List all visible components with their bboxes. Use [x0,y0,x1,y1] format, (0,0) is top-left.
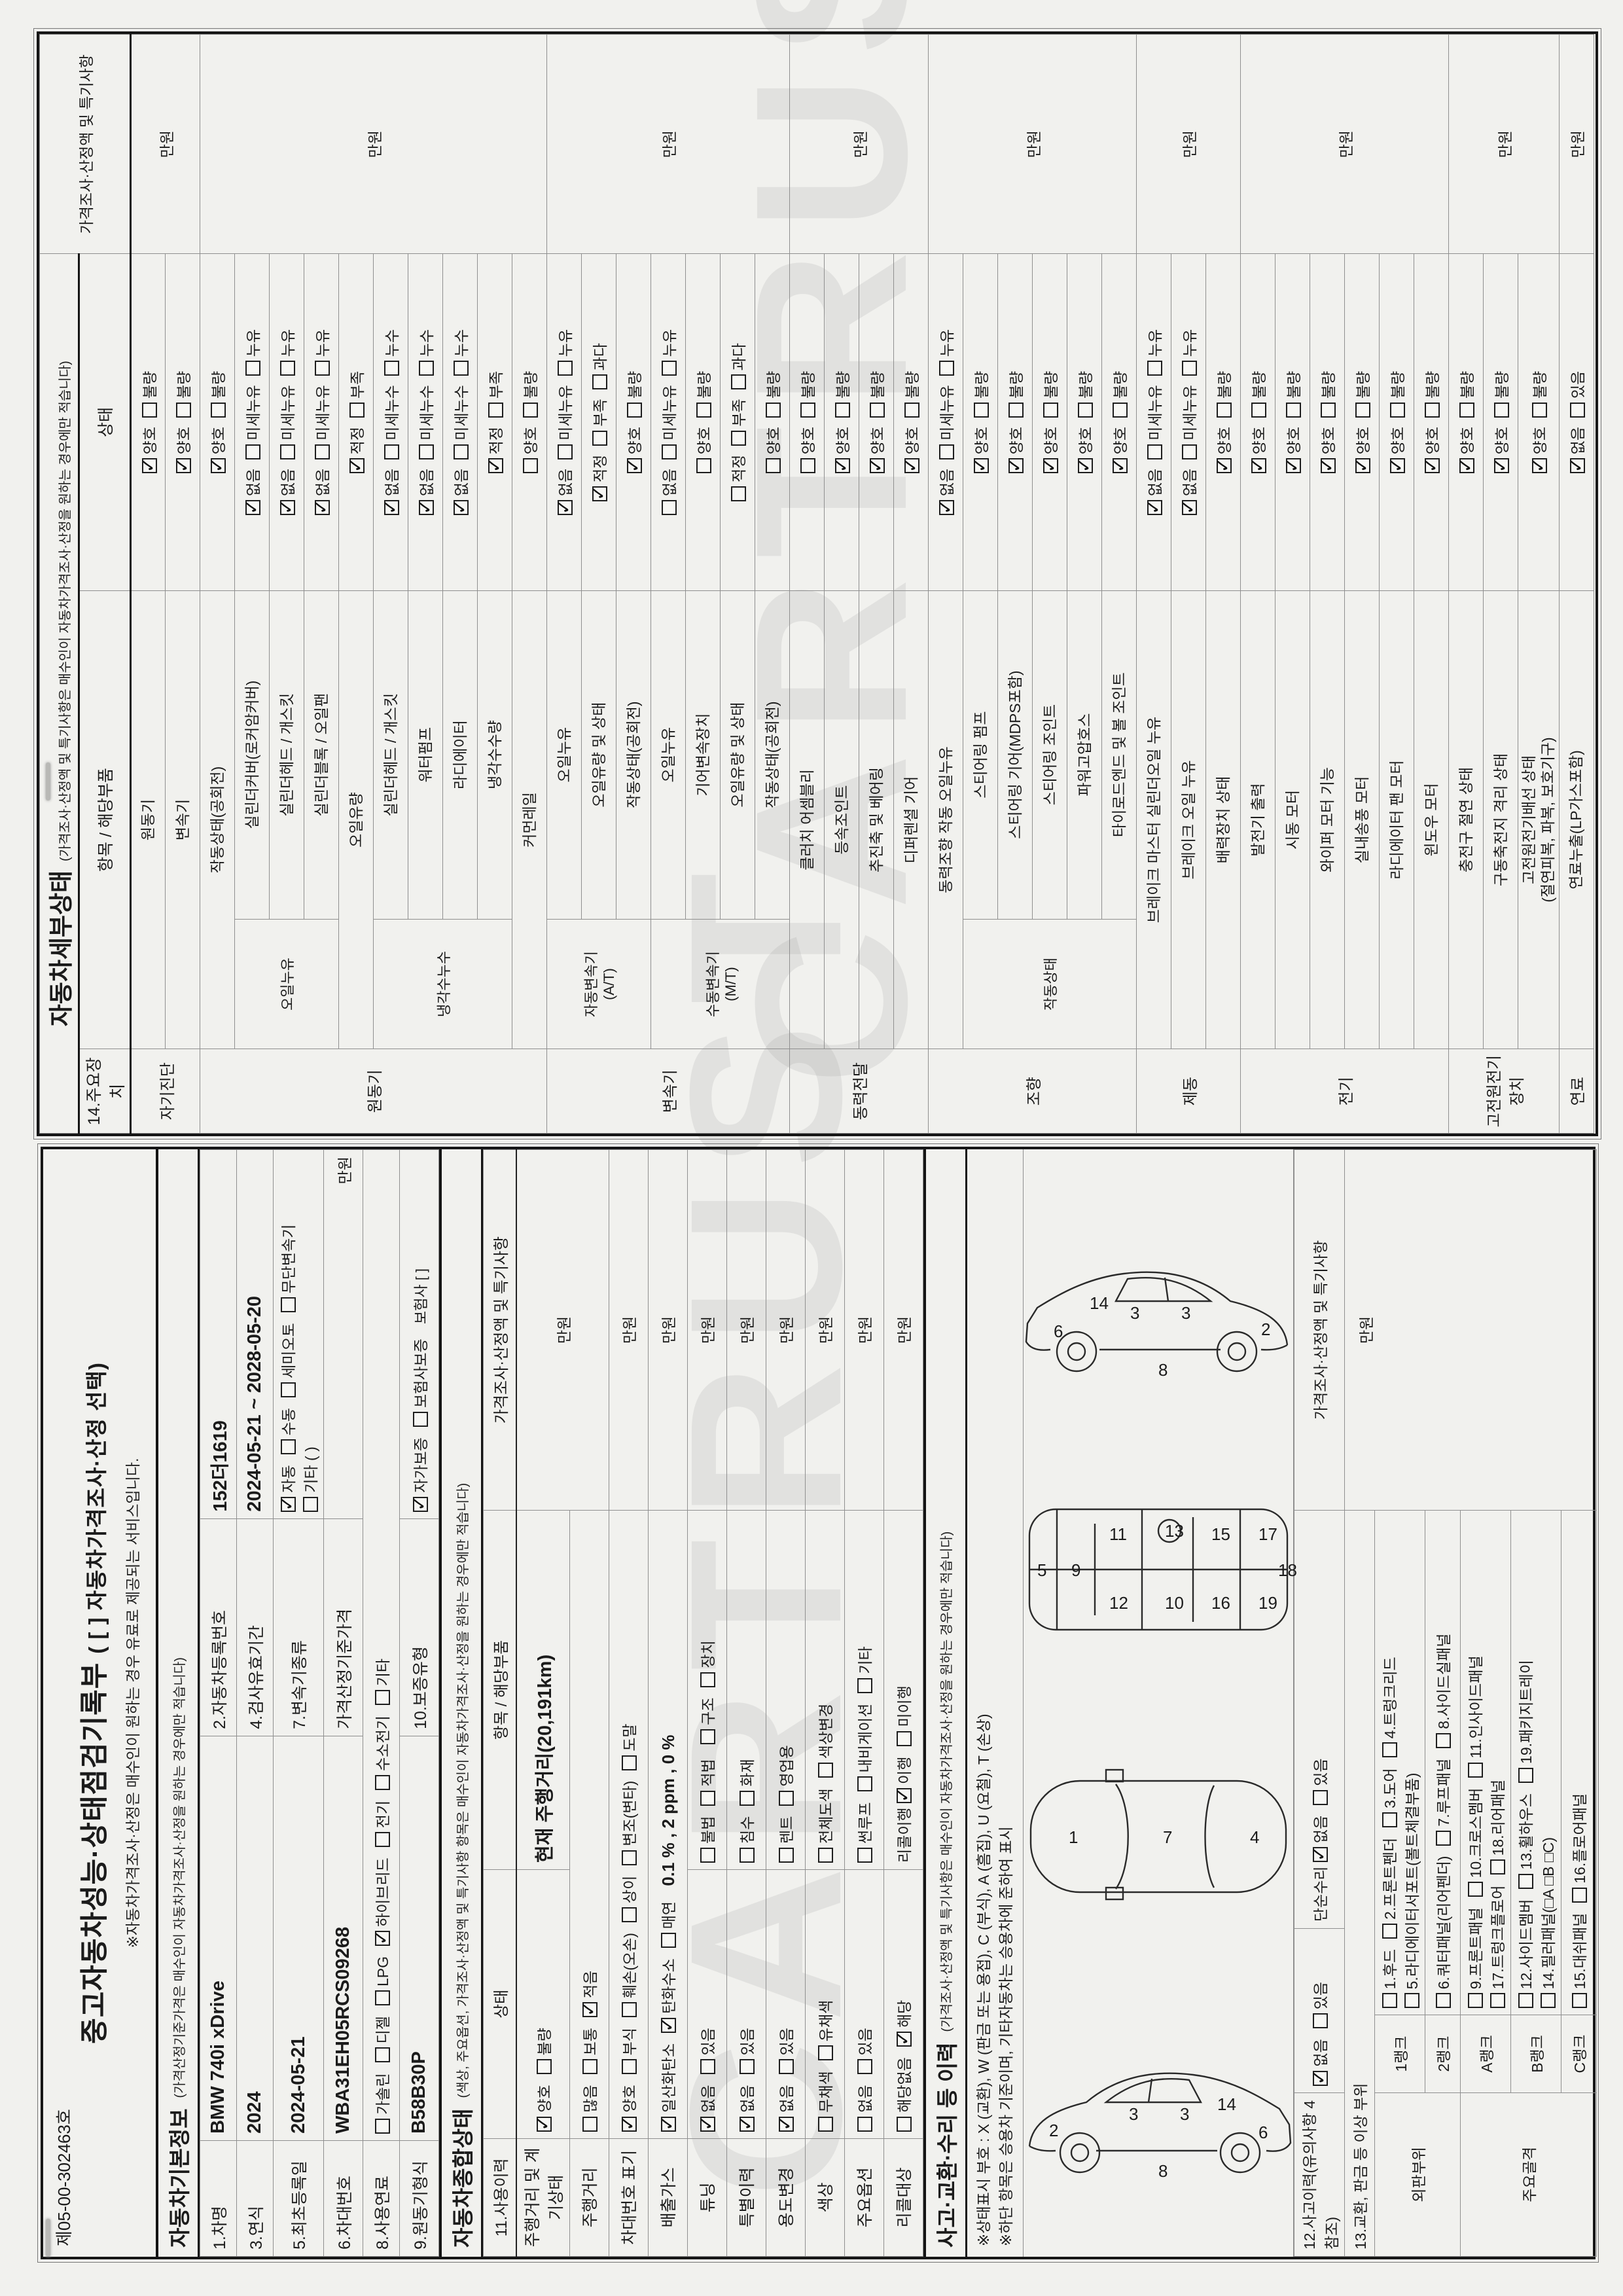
rank-items-line: 14.필러패널(□A □B □C) [1536,1517,1558,2008]
checkbox-checked[interactable] [1313,2071,1328,2086]
checkbox-unchecked[interactable] [622,1755,637,1770]
option-13.휠하우스: 13.휠하우스 [1514,1793,1536,1889]
checkbox-unchecked[interactable] [1390,403,1405,418]
checkbox-unchecked[interactable] [315,444,330,459]
detail-state: 양호불량 [1067,254,1102,590]
checkbox-checked[interactable] [661,2117,676,2132]
checkbox-checked[interactable] [700,2117,715,2132]
checkbox-unchecked[interactable] [700,2059,715,2074]
option-label: 불량 [800,371,817,399]
checkbox-checked[interactable] [1570,458,1585,473]
text: 실린더헤드 / 개스킷 [278,693,295,816]
text: 만원 [1026,130,1043,158]
checkbox-unchecked[interactable] [1313,2013,1328,2028]
overall-row-price: 만원 [516,1150,609,1511]
checkbox-unchecked[interactable] [454,361,469,376]
option-불량: 불량 [1455,371,1477,418]
checkbox-checked[interactable] [1425,458,1440,473]
checkbox-checked[interactable] [375,1931,390,1946]
detail-state: 없음미세누유누유 [270,254,304,590]
option-있음: 있음 [1308,1758,1330,1804]
option-불량: 불량 [518,371,541,418]
detail-item: 오일유량 및 상태 [721,590,755,919]
option-label: 가솔린 [374,2073,391,2114]
checkbox-unchecked[interactable] [700,1791,715,1806]
basic-engine-value: B58B30P [400,1736,439,2140]
checkbox-checked[interactable] [897,1788,912,1803]
checkbox-unchecked[interactable] [1532,403,1547,418]
checkbox-unchecked[interactable] [349,403,365,418]
option-수소전기: 수소전기 [370,1715,393,1790]
option-label: 기타 ( ) [302,1446,319,1492]
checkbox-unchecked[interactable] [696,458,711,473]
detail-group-연료: 연료 [1559,1049,1594,1134]
text: 오일누유 [660,727,677,783]
checkbox-unchecked[interactable] [1572,1993,1587,2008]
checkbox-unchecked[interactable] [766,458,781,473]
checkbox-unchecked[interactable] [176,403,191,418]
checkbox-unchecked[interactable] [622,2059,637,2074]
checkbox-unchecked[interactable] [818,1763,833,1778]
option-양호: 양호 [1108,427,1130,473]
option-누유: 누유 [553,329,575,376]
option-불량: 불량 [1527,371,1550,418]
checkbox-unchecked[interactable] [281,1439,296,1454]
detail-subgroup: 수동변속기(M/T) [651,919,790,1049]
checkbox-unchecked[interactable] [1468,1763,1483,1778]
option-해당: 해당 [892,2000,914,2047]
checkbox-unchecked[interactable] [280,361,295,376]
option-11.인사이드패널: 11.인사이드패널 [1463,1655,1486,1777]
checkbox-unchecked[interactable] [375,1690,390,1705]
option-label: 양호 [1355,427,1372,454]
checkbox-unchecked[interactable] [1382,1924,1397,1939]
checkbox-checked[interactable] [176,458,191,473]
checkbox-unchecked[interactable] [375,2119,390,2134]
overall-header-2: 항목 / 해당부품 [484,1511,516,1870]
checkbox-checked[interactable] [558,500,573,515]
checkbox-unchecked[interactable] [1217,403,1232,418]
detail-state: 양호불량 [1102,254,1137,590]
overall-row-options: 일산화탄소탄화수소매연 0.1 % , 2 ppm , 0 % [648,1511,687,2139]
checkbox-unchecked[interactable] [281,1297,296,1312]
checkbox-unchecked[interactable] [1459,403,1474,418]
text: 수동변속기 [705,951,721,1017]
option-양호: 양호 [1039,427,1061,473]
checkbox-unchecked[interactable] [939,444,954,459]
checkbox-unchecked[interactable] [1382,1993,1397,2008]
checkbox-unchecked[interactable] [857,1848,872,1863]
checkbox-checked[interactable] [211,458,226,473]
checkbox-unchecked[interactable] [1436,1733,1451,1748]
checkbox-checked[interactable] [592,486,607,501]
checkbox-checked[interactable] [661,2018,676,2033]
option-label: 누유 [1181,329,1198,357]
checkbox-unchecked[interactable] [558,444,573,459]
checkbox-unchecked[interactable] [1518,1768,1533,1783]
checkbox-unchecked[interactable] [1490,1859,1505,1874]
option-양호: 양호 [692,427,714,473]
checkbox-unchecked[interactable] [857,1678,872,1693]
checkbox-unchecked[interactable] [1518,1993,1533,2008]
basic-regno-label: 2.자동차등록번호 [200,1518,237,1736]
option-수동: 수동 [276,1408,298,1454]
checkbox-checked[interactable] [281,1497,296,1512]
checkbox-unchecked[interactable] [592,431,607,446]
checkbox-unchecked[interactable] [1321,403,1336,418]
detail-group-전기: 전기 [1241,1049,1449,1134]
text: 단순수리 [1312,1862,1329,1922]
checkbox-unchecked[interactable] [1404,1993,1419,2008]
checkbox-unchecked[interactable] [662,500,677,515]
checkbox-unchecked[interactable] [904,403,919,418]
option-label: 적법 [700,1759,717,1786]
checkbox-unchecked[interactable] [303,1497,318,1512]
checkbox-unchecked[interactable] [857,2117,872,2132]
checkbox-unchecked[interactable] [558,361,573,376]
option-12.사이드멤버: 12.사이드멤버 [1514,1899,1536,2009]
checkbox-checked[interactable] [1532,458,1547,473]
option-적정: 적정 [484,427,506,473]
option-label: 없음 [661,469,678,496]
checkbox-unchecked[interactable] [375,2047,390,2062]
checkbox-checked[interactable] [870,458,885,473]
overall-row-state: 없음있음 [726,1869,766,2138]
basic-year-value: 2024 [237,1736,274,2140]
basic-trans-options: 자동수동세미오토무단변속기기타 ( ) [274,1150,324,1519]
checkbox-checked[interactable] [897,2032,912,2047]
option-label: 구조 [700,1698,717,1725]
checkbox-unchecked[interactable] [245,444,260,459]
option-label: 양호 [1251,427,1268,454]
checkbox-unchecked[interactable] [1468,1993,1483,2008]
option-label: 과다 [592,343,609,370]
option-label: 양호 [1459,427,1476,454]
checkbox-unchecked[interactable] [537,2059,552,2074]
option-label: 변조(변타) [621,1781,638,1846]
checkbox-unchecked[interactable] [662,361,677,376]
option-label: 불량 [1285,371,1302,399]
checkbox-unchecked[interactable] [779,2059,794,2074]
checkbox-checked[interactable] [740,2117,755,2132]
detail-item: 디퍼렌셜 기어 [894,590,929,1049]
checkbox-checked[interactable] [835,458,850,473]
checkbox-checked[interactable] [904,458,919,473]
checkbox-unchecked[interactable] [835,403,850,418]
rank-label: 1랭크 [1374,2015,1425,2092]
checkbox-checked[interactable] [1321,458,1336,473]
detail-state: 양호불량 [1518,254,1560,590]
option-있음: 있음 [696,2028,718,2074]
checkbox-checked[interactable] [582,2002,597,2017]
option-부족: 부족 [726,399,749,445]
option-미세누유: 미세누유 [310,385,332,459]
overall-row-label: 색상 [805,2138,844,2256]
checkbox-unchecked[interactable] [818,1848,833,1863]
checkbox-unchecked[interactable] [1494,403,1509,418]
svg-text:13: 13 [1165,1521,1184,1541]
option-label: 양호 [1389,427,1406,454]
checkbox-unchecked[interactable] [939,361,954,376]
option-없음: 없음 [657,469,679,515]
option-없음: 없음 [380,469,402,515]
option-label: 장치 [700,1640,717,1668]
detail-group-변속기: 변속기 [547,1049,790,1134]
text: 0.1 % , 2 ppm , 0 % [658,1734,678,1890]
checkbox-unchecked[interactable] [384,361,399,376]
checkbox-unchecked[interactable] [696,403,711,418]
checkbox-unchecked[interactable] [1182,361,1197,376]
option-label: 불량 [869,371,886,399]
checkbox-unchecked[interactable] [488,403,503,418]
option-label: 불량 [1043,371,1060,399]
checkbox-unchecked[interactable] [1382,1812,1397,1827]
option-label: 없음 [739,2085,756,2112]
checkbox-unchecked[interactable] [731,431,746,446]
checkbox-unchecked[interactable] [592,374,607,389]
option-7.루프패널: 7.루프패널 [1431,1759,1454,1846]
checkbox-unchecked[interactable] [281,1382,296,1397]
option-label: 수소전기 [374,1715,391,1771]
checkbox-unchecked[interactable] [211,403,226,418]
checkbox-unchecked[interactable] [779,1848,794,1863]
checkbox-unchecked[interactable] [818,2045,833,2060]
checkbox-unchecked[interactable] [1147,444,1162,459]
detail-state: 양호불량 [1206,254,1241,590]
checkbox-checked[interactable] [537,2117,552,2132]
checkbox-checked[interactable] [280,500,295,515]
checkbox-unchecked[interactable] [700,1672,715,1687]
checkbox-checked[interactable] [1251,458,1266,473]
checkbox-unchecked[interactable] [419,444,434,459]
checkbox-unchecked[interactable] [897,1731,912,1746]
checkbox-unchecked[interactable] [731,374,746,389]
text: (절연피복, 파복, 보호기구) [1539,737,1556,902]
checkbox-unchecked[interactable] [1468,1882,1483,1897]
checkbox-checked[interactable] [1078,458,1093,473]
checkbox-unchecked[interactable] [1436,1831,1451,1846]
checkbox-checked[interactable] [488,458,503,473]
checkbox-unchecked[interactable] [779,1791,794,1806]
option-자가보증: 자가보증 [408,1437,431,1512]
svg-text:6: 6 [1258,2123,1268,2142]
option-미세누유: 미세누유 [241,385,263,459]
text: 작동상태 [1043,958,1059,1011]
option-label: 보통 [582,2028,599,2055]
checkbox-checked[interactable] [1217,458,1232,473]
detail-item: 연료누출(LP가스포함) [1559,590,1594,1049]
option-렌트: 렌트 [774,1816,796,1863]
checkbox-unchecked[interactable] [384,444,399,459]
option-과다: 과다 [588,343,610,389]
checkbox-unchecked[interactable] [245,361,260,376]
option-label: 양호 [1216,427,1233,454]
checkbox-unchecked[interactable] [740,1791,755,1806]
checkbox-unchecked[interactable] [1518,1874,1533,1889]
checkbox-checked[interactable] [1494,458,1509,473]
option-1.후드: 1.후드 [1378,1949,1400,2009]
checkbox-unchecked[interactable] [375,1775,390,1790]
detail-group-제동: 제동 [1137,1049,1241,1134]
option-미세누수: 미세누수 [449,385,471,459]
checkbox-checked[interactable] [1286,458,1301,473]
checkbox-checked[interactable] [454,500,469,515]
checkbox-unchecked[interactable] [627,403,642,418]
checkbox-checked[interactable] [1113,458,1128,473]
checkbox-unchecked[interactable] [700,1848,715,1863]
checkbox-unchecked[interactable] [1286,403,1301,418]
option-label: 전체도색 [817,1788,834,1844]
option-색상변경: 색상변경 [813,1704,836,1778]
checkbox-checked[interactable] [384,500,399,515]
diagram-underbody: 59111213101516171918 [1018,1471,1299,1668]
checkbox-unchecked[interactable] [766,403,781,418]
checkbox-unchecked[interactable] [1147,361,1162,376]
option-label: 불량 [1077,371,1094,399]
checkbox-unchecked[interactable] [1541,1993,1556,2008]
detail-group-price: 만원 [1449,35,1560,254]
checkbox-unchecked[interactable] [1570,403,1585,418]
option-변조(변타): 변조(변타) [617,1781,639,1865]
option-label: 불량 [696,371,713,399]
checkbox-unchecked[interactable] [661,1933,676,1948]
checkbox-unchecked[interactable] [857,1776,872,1791]
checkbox-unchecked[interactable] [280,444,295,459]
option-누수: 누수 [414,329,437,376]
checkbox-unchecked[interactable] [1113,403,1128,418]
checkbox-unchecked[interactable] [1572,1888,1587,1903]
overall-row-state: 양호불량 [516,1869,570,2138]
checkbox-unchecked[interactable] [800,458,815,473]
scanned-report-page: CARTRUST CARTRUST 제05-00-302463호 중고자동차성능… [0,0,1623,2296]
detail-state: 양호불량 [963,254,998,590]
checkbox-unchecked[interactable] [1251,403,1266,418]
checkbox-checked[interactable] [1459,458,1474,473]
option-누수: 누수 [380,329,402,376]
checkbox-unchecked[interactable] [622,1907,637,1922]
overall-row-price: 만원 [648,1150,687,1511]
checkbox-unchecked[interactable] [740,2059,755,2074]
checkbox-unchecked[interactable] [1436,1993,1451,2008]
checkbox-unchecked[interactable] [870,403,885,418]
checkbox-unchecked[interactable] [1355,403,1370,418]
svg-text:18: 18 [1278,1560,1297,1580]
checkbox-unchecked[interactable] [622,2002,637,2017]
checkbox-unchecked[interactable] [523,403,538,418]
option-label: 있음 [778,2028,795,2055]
checkbox-unchecked[interactable] [582,2117,597,2132]
checkbox-unchecked[interactable] [1043,403,1058,418]
checkbox-unchecked[interactable] [1008,403,1024,418]
detail-group-price: 만원 [200,35,547,254]
checkbox-checked[interactable] [779,2117,794,2132]
checkbox-checked[interactable] [1008,458,1024,473]
checkbox-unchecked[interactable] [622,1850,637,1865]
option-양호: 양호 [900,427,922,473]
checkbox-unchecked[interactable] [731,486,746,501]
option-없음: 없음 [1308,1816,1330,1862]
text: 만원 [852,130,869,158]
checkbox-unchecked[interactable] [740,1848,755,1863]
option-label: 렌트 [778,1816,795,1844]
basic-year-label: 3.연식 [237,2140,274,2256]
checkbox-unchecked[interactable] [523,458,538,473]
checkbox-unchecked[interactable] [142,403,157,418]
checkbox-checked[interactable] [413,1497,428,1512]
checkbox-checked[interactable] [315,500,330,515]
checkbox-unchecked[interactable] [800,403,815,418]
checkbox-unchecked[interactable] [1078,403,1093,418]
checkbox-unchecked[interactable] [315,361,330,376]
detail-state: 없음미세누유누유 [304,254,339,590]
checkbox-checked[interactable] [1355,458,1370,473]
checkbox-unchecked[interactable] [1182,444,1197,459]
option-label: 적음 [582,1971,599,1998]
checkbox-checked[interactable] [939,500,954,515]
checkbox-checked[interactable] [1182,500,1197,515]
checkbox-checked[interactable] [627,458,642,473]
option-2.프론트펜더: 2.프론트펜더 [1378,1838,1400,1939]
checkbox-checked[interactable] [1043,458,1058,473]
checkbox-unchecked[interactable] [818,2117,833,2132]
option-label: 부족 [592,399,609,426]
detail-state: 양호불량 [1484,254,1518,590]
checkbox-unchecked[interactable] [700,1729,715,1744]
checkbox-checked[interactable] [974,458,989,473]
option-8.사이드실패널: 8.사이드실패널 [1431,1634,1454,1748]
page-basic-info: 제05-00-302463호 중고자동차성능·상태점검기록부 ( [ ] 자동차… [41,1147,1596,2259]
option-침수: 침수 [735,1816,757,1863]
checkbox-checked[interactable] [1147,500,1162,515]
checkbox-unchecked[interactable] [857,2059,872,2074]
checkbox-unchecked[interactable] [419,361,434,376]
option-label: 부식 [621,2028,638,2055]
checkbox-checked[interactable] [1390,458,1405,473]
checkbox-checked[interactable] [245,500,260,515]
checkbox-unchecked[interactable] [375,1990,390,2005]
checkbox-unchecked[interactable] [662,444,677,459]
checkbox-checked[interactable] [349,458,365,473]
checkbox-checked[interactable] [622,2117,637,2132]
svg-text:8: 8 [1158,2161,1168,2181]
detail-state: 양호불량 [166,254,200,590]
option-label: 있음 [1312,1758,1329,1785]
checkbox-checked[interactable] [1313,1847,1328,1862]
checkbox-unchecked[interactable] [1313,1790,1328,1805]
detail-item: 추진축 및 베어링 [859,590,894,1049]
text: 워터펌프 [417,727,434,783]
checkbox-unchecked[interactable] [1490,1993,1505,2008]
checkbox-checked[interactable] [142,458,157,473]
text: 조향 [1026,1077,1043,1105]
checkbox-unchecked[interactable] [897,2117,912,2132]
option-기타: 기타 [853,1646,875,1693]
checkbox-unchecked[interactable] [974,403,989,418]
basic-warranty-label: 10.보증유형 [400,1518,439,1736]
checkbox-unchecked[interactable] [375,1832,390,1847]
checkbox-unchecked[interactable] [1425,403,1440,418]
option-label: 있음 [739,2028,756,2055]
option-없음: 없음 [1308,2039,1330,2085]
option-유채색: 유채색 [813,2000,836,2060]
checkbox-checked[interactable] [419,500,434,515]
checkbox-unchecked[interactable] [1382,1742,1397,1757]
option-label: 탄화수소 [660,1958,677,2014]
option-없음: 없음 [276,469,298,515]
checkbox-unchecked[interactable] [413,1412,428,1427]
checkbox-unchecked[interactable] [582,2059,597,2074]
checkbox-unchecked[interactable] [454,444,469,459]
